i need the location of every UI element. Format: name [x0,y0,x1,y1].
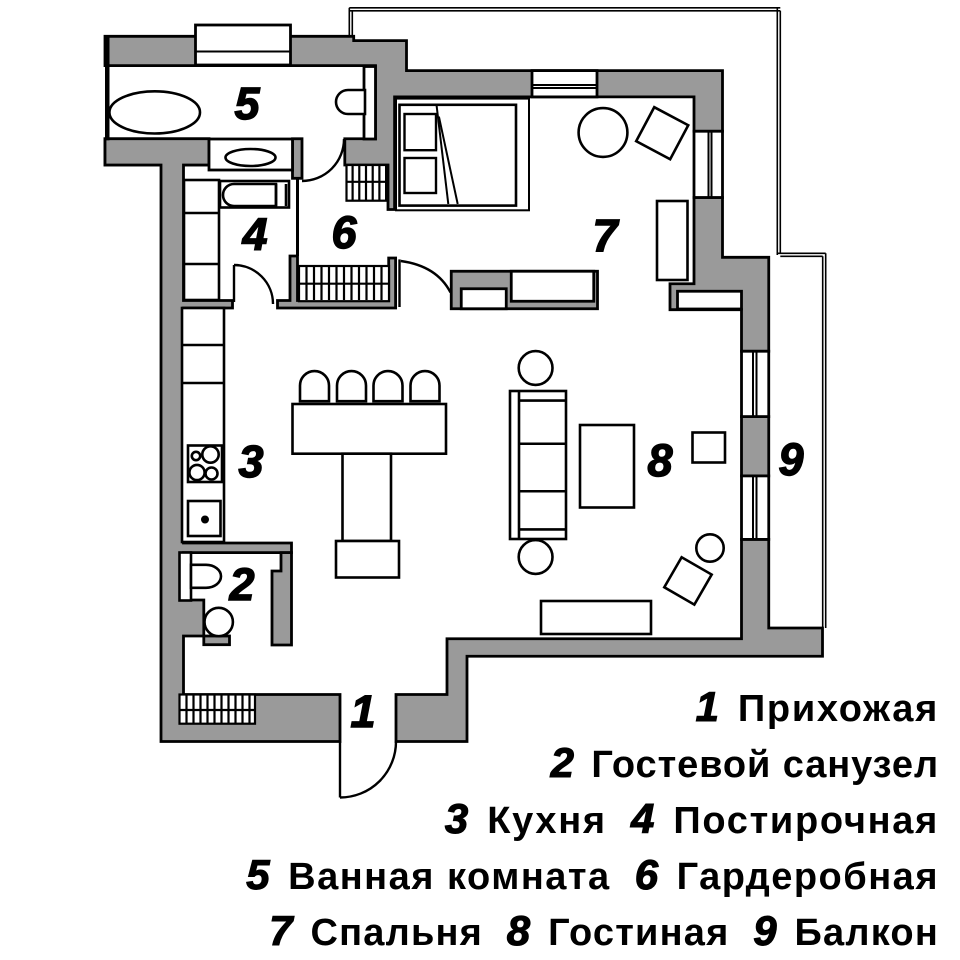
svg-text:5 Ванная комната 6 Гардеробная: 5 Ванная комната 6 Гардеробная [246,851,939,898]
svg-text:6: 6 [331,207,357,258]
svg-text:9: 9 [778,434,803,485]
svg-text:3: 3 [238,436,263,487]
svg-text:2: 2 [228,559,254,610]
svg-text:4: 4 [241,209,267,260]
svg-text:2 Гостевой санузел: 2 Гостевой санузел [550,739,939,786]
svg-text:7: 7 [592,210,619,261]
svg-text:5: 5 [234,78,260,129]
svg-text:3 Кухня 4 Постирочная: 3 Кухня 4 Постирочная [445,795,939,842]
svg-text:1: 1 [350,686,375,737]
svg-text:8: 8 [647,435,672,486]
svg-text:7 Спальня 8 Гостиная 9 Балкон: 7 Спальня 8 Гостиная 9 Балкон [269,907,939,954]
svg-text:1 Прихожая: 1 Прихожая [696,683,939,730]
